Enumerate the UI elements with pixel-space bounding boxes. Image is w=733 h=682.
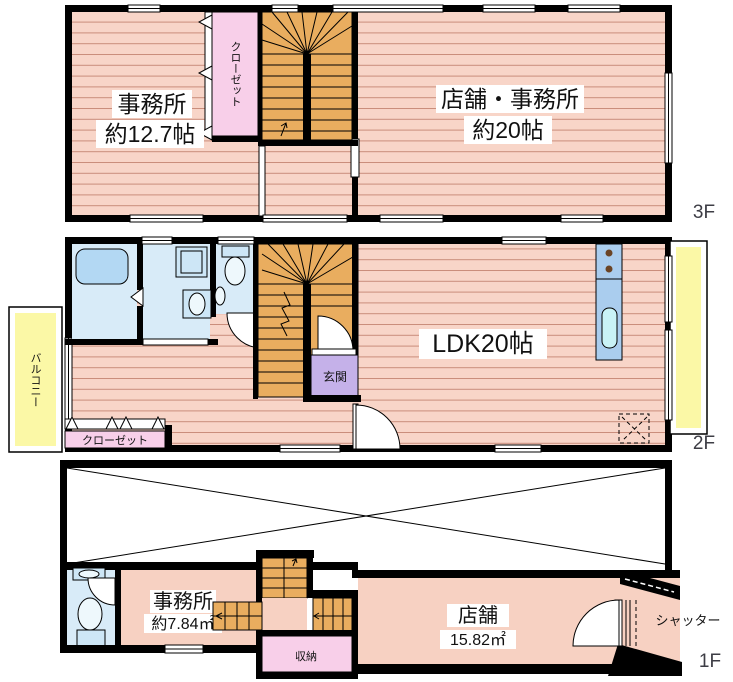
wall-segment bbox=[256, 550, 314, 558]
wall-segment bbox=[308, 590, 358, 598]
bathtub bbox=[76, 249, 128, 284]
wall-segment bbox=[60, 460, 672, 468]
wall-segment bbox=[352, 664, 618, 674]
3f-office-name: 事務所 bbox=[118, 91, 187, 117]
sliding-door bbox=[259, 146, 265, 216]
toilet-tank bbox=[77, 630, 105, 646]
2f-entrance-label: 玄関 bbox=[323, 369, 347, 384]
wall-segment bbox=[60, 645, 265, 653]
2f-ldk-label: LDK20帖 bbox=[432, 330, 533, 358]
entrance-sill bbox=[312, 349, 356, 355]
wall-segment bbox=[256, 672, 358, 679]
3f-shop-office-size: 約20帖 bbox=[472, 117, 544, 143]
1f-office-name: 事務所 bbox=[153, 590, 213, 613]
wall-segment bbox=[60, 460, 67, 652]
wall-segment bbox=[65, 339, 143, 345]
shutter-label: シャッター bbox=[655, 613, 720, 628]
1f-floor-label: 1F bbox=[699, 651, 721, 672]
2f-balcony-label: バルコニー bbox=[29, 353, 42, 408]
3f-office-size: 約12.7帖 bbox=[105, 121, 196, 147]
floor-3f: クローゼット 事務所 約12.7帖 店舗・事務所 約20帖 3F bbox=[65, 5, 715, 223]
toilet-sink-basin bbox=[79, 570, 99, 578]
corner-basin bbox=[215, 287, 225, 305]
2f-floor-label: 2F bbox=[693, 433, 715, 454]
stair-divider-wall bbox=[303, 54, 311, 140]
stair-landing bbox=[262, 598, 307, 635]
2f-balcony-right-deck bbox=[676, 247, 701, 428]
wall-segment bbox=[212, 136, 258, 142]
3f-closet-label: クローゼット bbox=[229, 41, 242, 107]
wall-segment bbox=[253, 244, 258, 399]
wall-segment bbox=[256, 630, 262, 679]
floor-2f: バルコニー 玄関 bbox=[9, 237, 715, 454]
wall-segment bbox=[165, 425, 172, 448]
1f-shop-size: 15.82㎡ bbox=[450, 631, 506, 649]
1f-storage-label: 収納 bbox=[295, 650, 317, 663]
wall-segment bbox=[665, 460, 672, 575]
wall-segment bbox=[256, 630, 358, 636]
2f-closet-label: クローゼット bbox=[82, 434, 148, 447]
wall-segment bbox=[137, 244, 143, 290]
wall-segment bbox=[258, 140, 358, 146]
floor-plan-svg: クローゼット 事務所 約12.7帖 店舗・事務所 約20帖 3F bbox=[0, 0, 733, 682]
floor-1f: 事務所 約7.84㎡ 収納 店舗 15.8 bbox=[60, 460, 721, 679]
stair-divider-wall bbox=[303, 284, 311, 397]
toilet-tank bbox=[222, 246, 249, 257]
3f-shop-office-name: 店舗・事務所 bbox=[441, 86, 579, 112]
toilet-bowl bbox=[225, 257, 245, 285]
1f-office-size: 約7.84㎡ bbox=[151, 615, 214, 633]
wall-segment bbox=[208, 339, 218, 345]
1f-shop-name: 店舗 bbox=[458, 604, 498, 627]
kitchen-sink bbox=[602, 308, 617, 348]
burner bbox=[606, 266, 613, 273]
wall-segment bbox=[352, 12, 358, 215]
floor-plan-image: クローゼット 事務所 約12.7帖 店舗・事務所 約20帖 3F bbox=[0, 0, 733, 682]
wall-segment bbox=[303, 395, 361, 402]
wall-segment bbox=[137, 306, 143, 339]
sliding-door bbox=[143, 339, 208, 345]
wall-segment bbox=[308, 562, 358, 570]
wall-segment bbox=[258, 12, 262, 140]
burner bbox=[606, 250, 613, 257]
vanity-basin bbox=[189, 293, 205, 315]
toilet-bowl bbox=[78, 598, 102, 630]
3f-floor-label: 3F bbox=[693, 202, 715, 223]
wall-segment bbox=[115, 570, 121, 647]
